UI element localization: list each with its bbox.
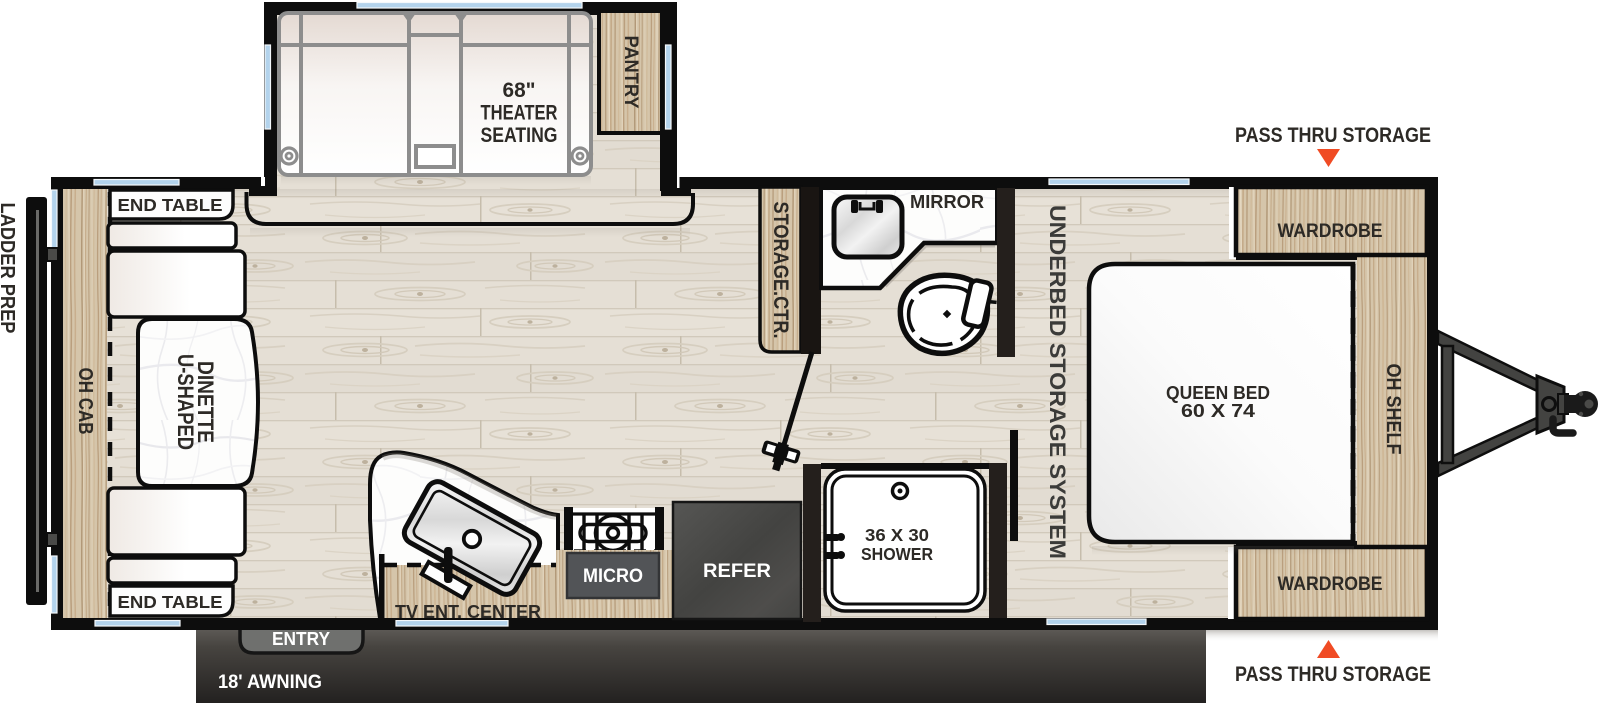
svg-text:END TABLE: END TABLE [118, 592, 223, 612]
svg-text:68": 68" [503, 78, 536, 102]
svg-text:MICRO: MICRO [583, 566, 643, 587]
svg-text:DINETTE: DINETTE [193, 361, 218, 443]
svg-text:REFER: REFER [703, 561, 771, 582]
svg-text:18' AWNING: 18' AWNING [218, 671, 322, 693]
svg-text:PASS THRU STORAGE: PASS THRU STORAGE [1235, 663, 1431, 686]
svg-text:QUEEN BED: QUEEN BED [1166, 383, 1270, 403]
svg-text:PASS THRU STORAGE: PASS THRU STORAGE [1235, 124, 1431, 147]
svg-text:WARDROBE: WARDROBE [1278, 573, 1383, 595]
svg-text:OH SHELF: OH SHELF [1382, 364, 1405, 455]
svg-text:WARDROBE: WARDROBE [1278, 220, 1383, 242]
svg-text:ENTRY: ENTRY [272, 629, 330, 649]
svg-text:36 X 30: 36 X 30 [865, 525, 929, 545]
svg-text:STORAGE.CTR.: STORAGE.CTR. [769, 202, 792, 339]
svg-text:THEATER: THEATER [481, 101, 558, 125]
svg-text:SHOWER: SHOWER [861, 544, 933, 564]
svg-text:LADDER PREP: LADDER PREP [0, 203, 18, 334]
svg-text:SEATING: SEATING [481, 123, 558, 147]
svg-text:TV ENT. CENTER: TV ENT. CENTER [395, 602, 541, 622]
svg-text:OH CAB: OH CAB [74, 368, 97, 435]
svg-text:60 X 74: 60 X 74 [1181, 401, 1255, 421]
svg-text:END TABLE: END TABLE [118, 195, 223, 215]
svg-text:MIRROR: MIRROR [910, 191, 984, 212]
svg-text:UNDERBED STORAGE SYSTEM: UNDERBED STORAGE SYSTEM [1045, 205, 1070, 559]
svg-text:PANTRY: PANTRY [620, 36, 641, 109]
